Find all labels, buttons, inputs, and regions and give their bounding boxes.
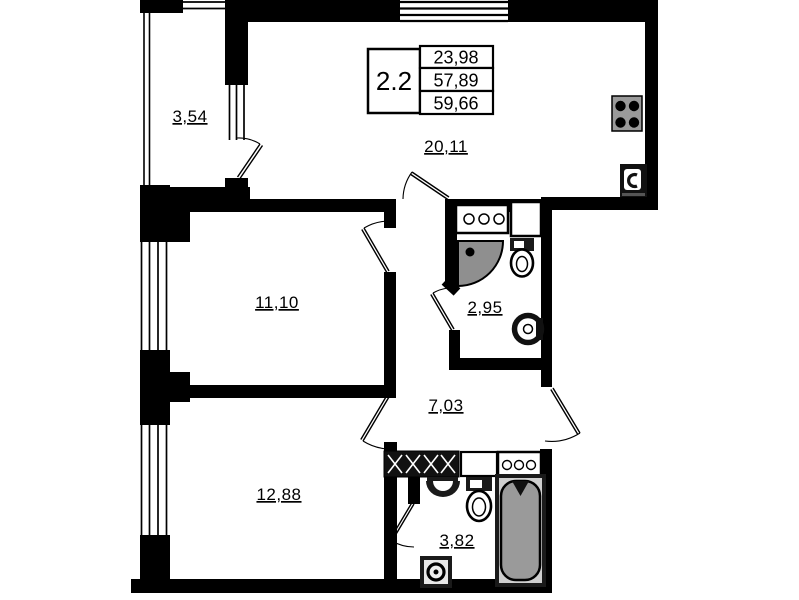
- unit-area-value-1: 23,98: [433, 48, 478, 68]
- stove-icon: [612, 96, 642, 131]
- door-bedroom-2: [361, 396, 389, 450]
- window-bedroom1: [142, 240, 167, 350]
- unit-area-value-2: 57,89: [433, 71, 478, 91]
- unit-type-label: 2.2: [376, 66, 412, 96]
- bathroom-small-fixtures: [456, 202, 543, 343]
- bathtub-icon: [495, 474, 546, 587]
- washbasin-icon: [426, 477, 460, 497]
- door-kitchen: [403, 172, 449, 200]
- washing-machine-icon: [420, 556, 452, 588]
- wall-sink-icon: [515, 316, 544, 343]
- room-label-bedroom-1: 11,10: [255, 293, 299, 312]
- door-bathroom-small: [431, 288, 454, 331]
- window-kitchen-top: [400, 2, 508, 21]
- room-label-bathroom-small: 2,95: [467, 298, 502, 317]
- counter-appliance-icon: [456, 205, 508, 233]
- floor-plan: 2.2 23,98 57,89 59,66 3,54 20,11 11,10 2…: [0, 0, 799, 600]
- room-label-bathroom-large: 3,82: [439, 531, 474, 550]
- wardrobe-icon: [384, 451, 459, 477]
- room-label-hallway: 7,03: [428, 396, 463, 415]
- kitchen-sink-icon: [620, 164, 647, 197]
- door-entrance: [545, 388, 580, 441]
- unit-area-value-3: 59,66: [433, 94, 478, 114]
- floor-plan-page: 2.2 23,98 57,89 59,66 3,54 20,11 11,10 2…: [0, 0, 799, 600]
- door-bedroom-1: [362, 221, 389, 273]
- room-label-balcony: 3,54: [172, 107, 207, 126]
- room-label-bedroom-2: 12,88: [256, 485, 301, 504]
- door-balcony: [237, 138, 263, 179]
- room-label-kitchen-living: 20,11: [424, 137, 468, 156]
- unit-info-box: 2.2 23,98 57,89 59,66: [368, 46, 493, 114]
- hallway-fixtures: [384, 451, 541, 478]
- kitchen-fixtures: [612, 96, 647, 197]
- window-kitchen-balcony: [230, 85, 245, 140]
- toilet2-icon: [466, 477, 492, 521]
- shower-icon: [458, 241, 503, 286]
- window-bedroom2: [142, 425, 167, 535]
- window-balcony-top: [183, 2, 228, 9]
- toilet-icon: [510, 238, 534, 277]
- cabinet-icon: [461, 452, 497, 476]
- window-balcony-west: [144, 13, 150, 187]
- vent-shaft-icon: [511, 202, 541, 236]
